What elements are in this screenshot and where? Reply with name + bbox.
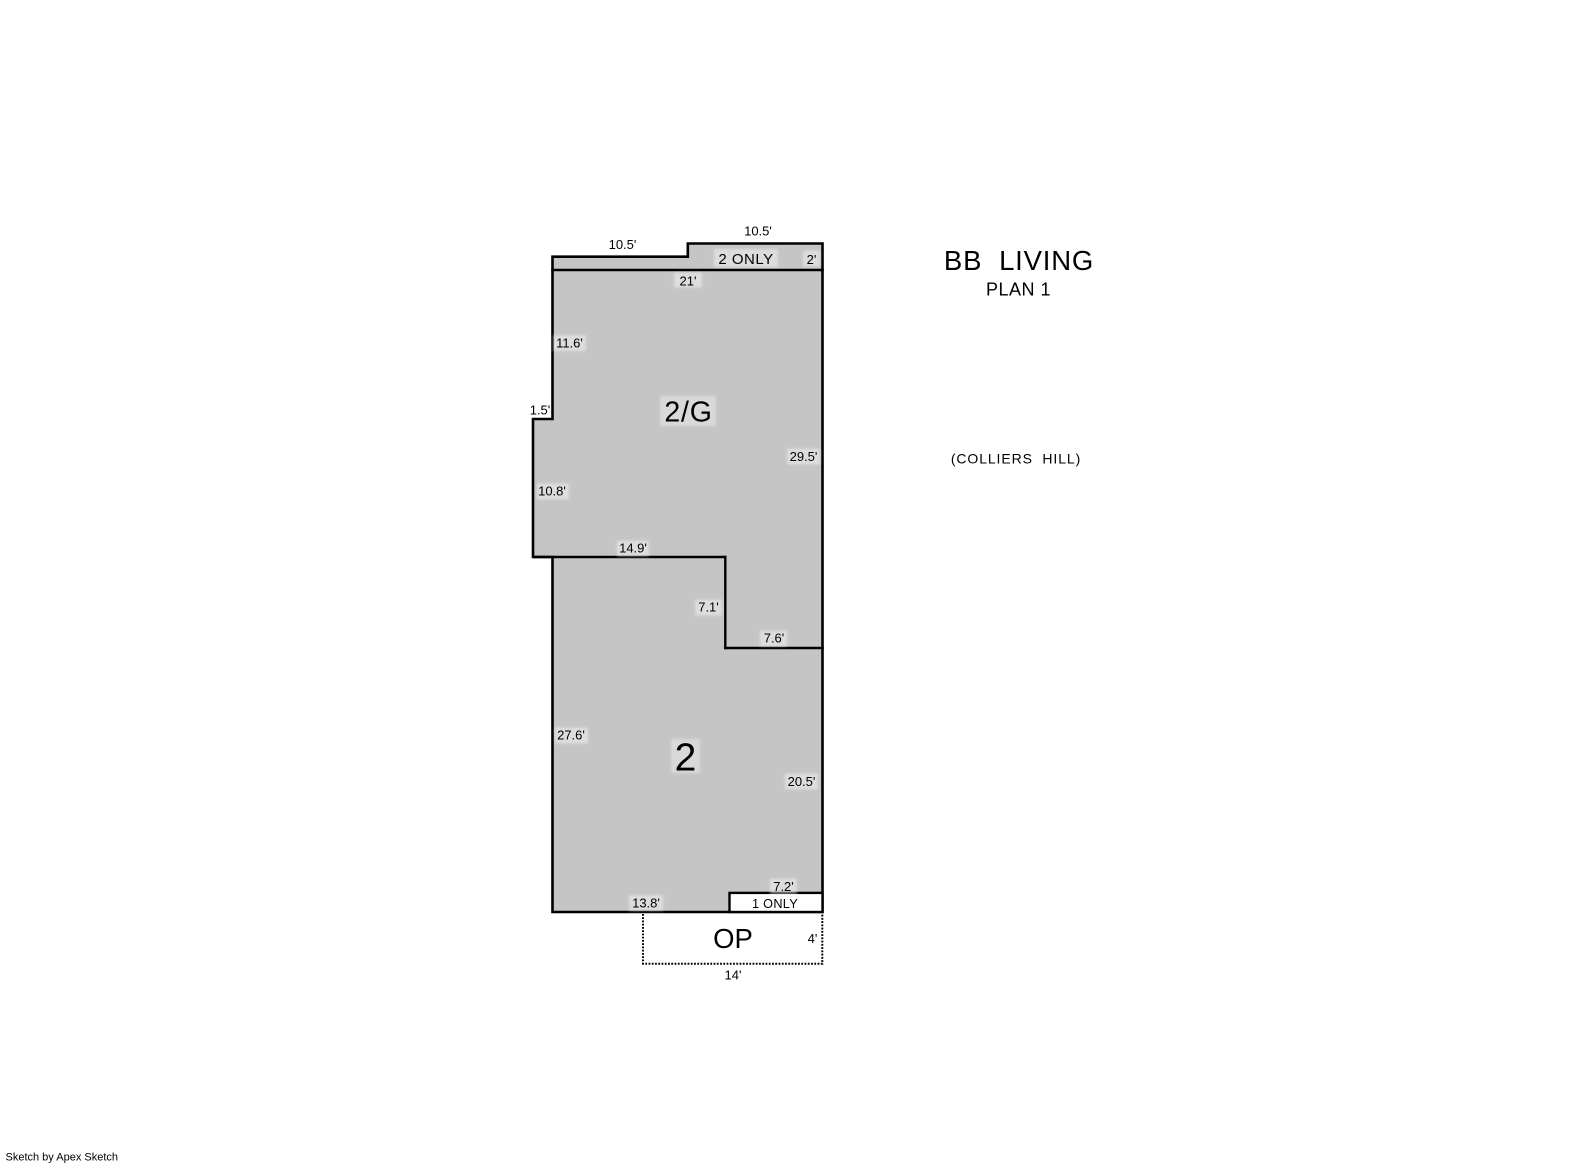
svg-text:14.9': 14.9' (619, 541, 647, 556)
svg-text:7.2': 7.2' (773, 879, 794, 894)
svg-text:29.5': 29.5' (790, 449, 818, 464)
svg-text:BB LIVING: BB LIVING (944, 245, 1094, 276)
svg-text:7.6': 7.6' (764, 631, 785, 646)
svg-text:14': 14' (725, 967, 742, 982)
svg-text:OP: OP (713, 923, 753, 954)
svg-text:27.6': 27.6' (557, 727, 585, 742)
svg-text:PLAN 1: PLAN 1 (986, 279, 1051, 299)
svg-text:20.5': 20.5' (788, 774, 816, 789)
svg-text:10.8': 10.8' (538, 484, 566, 499)
svg-text:4': 4' (808, 931, 818, 946)
svg-text:7.1': 7.1' (698, 600, 719, 615)
svg-text:11.6': 11.6' (556, 335, 583, 350)
svg-text:Sketch by Apex Sketch: Sketch by Apex Sketch (6, 1152, 119, 1164)
svg-text:21': 21' (680, 274, 697, 289)
svg-text:10.5': 10.5' (744, 224, 772, 239)
svg-text:10.5': 10.5' (609, 237, 637, 252)
svg-text:2: 2 (675, 736, 697, 779)
svg-text:1.5': 1.5' (530, 403, 551, 418)
svg-text:1 ONLY: 1 ONLY (752, 897, 798, 911)
svg-text:2/G: 2/G (664, 397, 712, 429)
svg-text:2': 2' (807, 252, 817, 267)
svg-text:13.8': 13.8' (632, 895, 660, 910)
svg-text:2 ONLY: 2 ONLY (718, 251, 773, 268)
svg-text:(COLLIERS HILL): (COLLIERS HILL) (951, 450, 1081, 466)
